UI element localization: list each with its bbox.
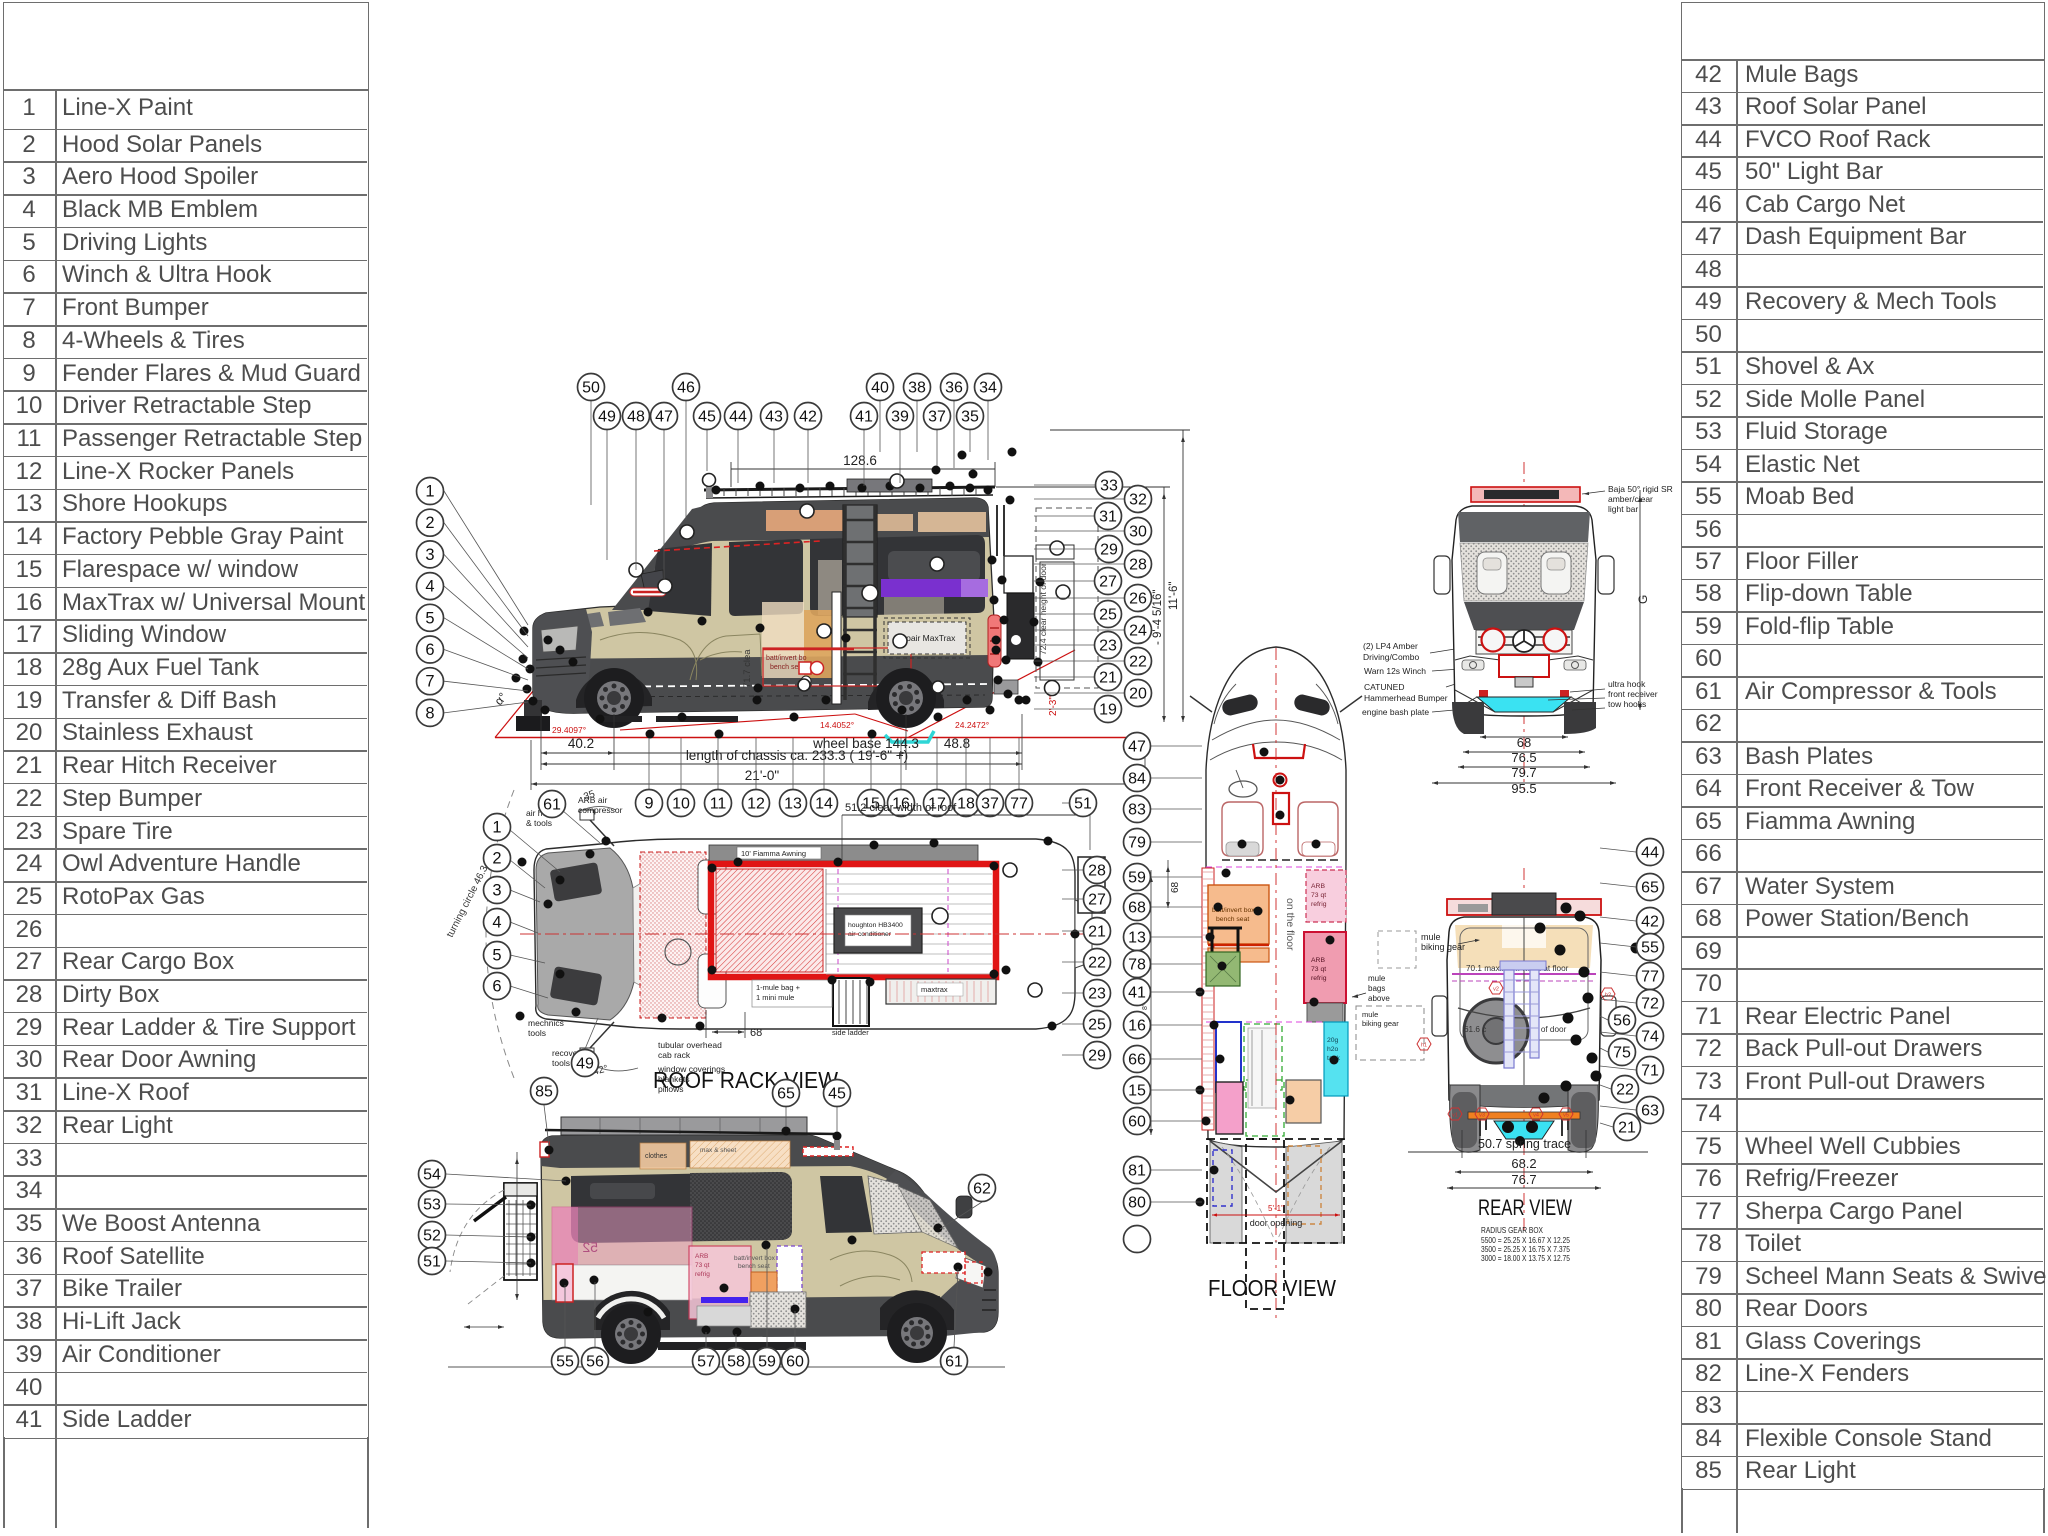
svg-text:v5: v5 [1563, 1113, 1569, 1119]
svg-text:13: 13 [784, 796, 802, 813]
svg-text:76.7: 76.7 [1511, 1172, 1536, 1187]
svg-text:2: 2 [492, 850, 501, 868]
svg-text:22: 22 [1129, 654, 1147, 671]
svg-text:76.5: 76.5 [1511, 750, 1536, 765]
svg-text:16: 16 [1128, 1018, 1146, 1035]
svg-text:51: 51 [423, 1254, 441, 1271]
svg-text:9: 9 [644, 795, 653, 813]
svg-text:light bar: light bar [1608, 504, 1638, 514]
svg-text:52: 52 [582, 1239, 598, 1255]
svg-text:clothes: clothes [645, 1153, 668, 1160]
svg-text:side ladder: side ladder [832, 1028, 869, 1037]
svg-text:34: 34 [979, 380, 997, 397]
svg-text:mule: mule [1368, 974, 1386, 983]
svg-text:air-conditioner: air-conditioner [848, 931, 892, 938]
svg-text:ARB: ARB [1311, 957, 1325, 964]
svg-text:bench sea: bench sea [770, 664, 802, 671]
svg-text:43: 43 [765, 409, 783, 426]
svg-text:10' Fiamma Awning: 10' Fiamma Awning [741, 849, 806, 858]
svg-text:35: 35 [961, 409, 979, 426]
svg-text:44: 44 [729, 409, 747, 426]
svg-text:FLOOR VIEW: FLOOR VIEW [1208, 1275, 1336, 1301]
svg-text:bench seat: bench seat [1216, 916, 1249, 923]
svg-text:55: 55 [1641, 940, 1659, 957]
svg-text:24.2472°: 24.2472° [955, 720, 989, 730]
svg-text:71.7 clea: 71.7 clea [742, 649, 753, 688]
svg-text:50: 50 [582, 380, 600, 397]
svg-text:8: 8 [425, 704, 434, 722]
svg-text:59: 59 [758, 1354, 776, 1371]
svg-text:18: 18 [957, 796, 975, 813]
svg-text:2'-3": 2'-3" [1048, 696, 1059, 716]
svg-text:bench seat: bench seat [738, 1263, 770, 1270]
svg-text:batt/invert box: batt/invert box [734, 1255, 776, 1262]
svg-text:v1: v1 [1452, 1113, 1458, 1119]
svg-text:refrig: refrig [1311, 975, 1327, 982]
svg-text:55: 55 [556, 1354, 574, 1371]
svg-text:21: 21 [1088, 924, 1106, 941]
svg-text:5: 5 [492, 947, 501, 965]
svg-text:60: 60 [786, 1354, 804, 1371]
svg-text:73 qt: 73 qt [695, 1262, 710, 1269]
svg-text:4: 4 [425, 578, 434, 596]
svg-text:42: 42 [799, 409, 817, 426]
svg-text:14.4052°: 14.4052° [820, 720, 854, 730]
svg-text:24: 24 [1129, 623, 1147, 640]
svg-text:65: 65 [1641, 880, 1659, 897]
svg-text:37: 37 [928, 409, 946, 426]
svg-text:23: 23 [1099, 638, 1117, 655]
svg-text:79: 79 [1128, 835, 1146, 852]
svg-text:48: 48 [627, 409, 645, 426]
svg-text:37: 37 [981, 796, 999, 813]
svg-text:28: 28 [1088, 863, 1106, 880]
svg-text:21: 21 [1618, 1120, 1636, 1137]
svg-text:door opening: door opening [1250, 1218, 1303, 1228]
svg-text:36: 36 [945, 380, 963, 397]
svg-text:mule: mule [1421, 932, 1441, 942]
svg-text:83: 83 [1128, 802, 1146, 819]
svg-text:15: 15 [1128, 1083, 1146, 1100]
svg-text:13: 13 [1128, 930, 1146, 947]
svg-text:25: 25 [1088, 1017, 1106, 1034]
svg-text:26: 26 [1129, 591, 1147, 608]
svg-text:(2) LP4 Amber: (2) LP4 Amber [1363, 641, 1418, 651]
svg-text:25: 25 [1099, 607, 1117, 624]
svg-text:65: 65 [777, 1086, 795, 1103]
svg-text:73 qt: 73 qt [1311, 966, 1326, 973]
svg-text:biking gear: biking gear [1421, 942, 1465, 952]
svg-text:biking gear: biking gear [1362, 1019, 1399, 1028]
svg-text:50.7 spring trace: 50.7 spring trace [1478, 1137, 1571, 1151]
svg-text:95.5: 95.5 [1511, 781, 1536, 796]
svg-text:12: 12 [747, 796, 765, 813]
svg-text:20g: 20g [1327, 1037, 1339, 1044]
svg-text:Warn 12s Winch: Warn 12s Winch [1364, 666, 1426, 676]
svg-text:68: 68 [1170, 881, 1181, 893]
svg-text:20: 20 [1129, 686, 1147, 703]
svg-text:tubular overhead: tubular overhead [658, 1040, 722, 1050]
svg-text:14: 14 [815, 796, 833, 813]
svg-text:3: 3 [492, 882, 501, 900]
svg-text:3000 = 18.00 X 13.75 X 12.75: 3000 = 18.00 X 13.75 X 12.75 [1481, 1253, 1570, 1263]
svg-text:63: 63 [1641, 1103, 1659, 1120]
svg-text:mechnics: mechnics [528, 1018, 564, 1028]
svg-text:40: 40 [871, 380, 889, 397]
svg-text:RADIUS GEAR BOX: RADIUS GEAR BOX [1481, 1225, 1543, 1235]
svg-text:houghton HB3400: houghton HB3400 [848, 922, 903, 929]
svg-text:54: 54 [423, 1167, 441, 1184]
svg-text:32: 32 [1129, 492, 1147, 509]
svg-text:33: 33 [1100, 478, 1118, 495]
svg-text:68: 68 [750, 1027, 762, 1039]
svg-text:81: 81 [1128, 1163, 1146, 1180]
svg-text:58: 58 [727, 1354, 745, 1371]
svg-text:44: 44 [1641, 845, 1659, 862]
svg-text:62: 62 [973, 1181, 991, 1198]
svg-text:21: 21 [1099, 670, 1117, 687]
svg-text:above: above [1368, 994, 1390, 1003]
svg-text:27: 27 [1099, 574, 1117, 591]
svg-text:2: 2 [425, 514, 434, 532]
svg-text:61.6 c: 61.6 c [1464, 1025, 1486, 1034]
svg-text:29.4097°: 29.4097° [552, 725, 586, 735]
svg-text:ARB: ARB [1311, 883, 1325, 890]
svg-text:refrig: refrig [1311, 901, 1327, 908]
svg-text:1-mule bag +: 1-mule bag + [756, 983, 801, 992]
svg-text:77: 77 [1010, 796, 1028, 813]
svg-text:61: 61 [543, 797, 561, 814]
svg-text:h2: h2 [1605, 993, 1611, 999]
svg-text:68: 68 [1128, 900, 1146, 917]
svg-text:80: 80 [1128, 1195, 1146, 1212]
svg-text:Baja 50° rigid SR: Baja 50° rigid SR [1608, 484, 1673, 494]
svg-text:52: 52 [423, 1228, 441, 1245]
svg-text:45: 45 [828, 1086, 846, 1103]
svg-text:1 mini mule: 1 mini mule [756, 993, 794, 1002]
svg-text:6: 6 [425, 641, 434, 659]
svg-text:refrig: refrig [695, 1271, 710, 1278]
svg-text:Hammerhead Bumper: Hammerhead Bumper [1364, 693, 1448, 703]
svg-text:CATUNED: CATUNED [1364, 682, 1404, 692]
svg-text:42: 42 [1641, 914, 1659, 931]
svg-text:tools: tools [552, 1058, 570, 1068]
svg-text:7: 7 [425, 673, 434, 691]
svg-text:4: 4 [492, 914, 501, 932]
svg-text:57: 57 [697, 1354, 715, 1371]
svg-text:29: 29 [1088, 1048, 1106, 1065]
svg-text:28: 28 [1129, 557, 1147, 574]
svg-text:bags: bags [1368, 984, 1385, 993]
svg-text:3: 3 [425, 546, 434, 564]
svg-text:128.6: 128.6 [843, 453, 877, 468]
svg-text:46: 46 [677, 380, 695, 397]
svg-text:5'-1": 5'-1" [1268, 1204, 1284, 1213]
svg-text:27: 27 [1088, 892, 1106, 909]
svg-text:73 qt: 73 qt [1311, 892, 1326, 899]
svg-text:59: 59 [1128, 870, 1146, 887]
svg-text:77: 77 [1641, 969, 1659, 986]
svg-text:53: 53 [423, 1197, 441, 1214]
svg-text:ROOF RACK VIEW: ROOF RACK VIEW [653, 1067, 838, 1093]
svg-text:engine bash plate: engine bash plate [1362, 707, 1429, 717]
svg-text:45: 45 [698, 409, 716, 426]
svg-text:47: 47 [655, 409, 673, 426]
svg-text:maxtrax: maxtrax [921, 985, 948, 994]
svg-text:22: 22 [1088, 955, 1106, 972]
svg-text:REAR VIEW: REAR VIEW [1478, 1195, 1572, 1220]
svg-text:19: 19 [1099, 702, 1117, 719]
svg-text:- 9'-4 5/16": - 9'-4 5/16" [1152, 589, 1164, 645]
svg-text:75: 75 [1613, 1045, 1631, 1062]
svg-text:30: 30 [1129, 524, 1147, 541]
svg-text:78: 78 [1128, 957, 1146, 974]
svg-text:compressor: compressor [578, 805, 623, 815]
svg-text:23: 23 [1088, 986, 1106, 1003]
svg-text:on the floor: on the floor [1284, 898, 1296, 951]
svg-text:56: 56 [1613, 1013, 1631, 1030]
svg-text:72: 72 [1641, 996, 1659, 1013]
svg-text:mule: mule [1362, 1010, 1378, 1019]
svg-text:ultra hook: ultra hook [1608, 679, 1646, 689]
svg-text:h2o: h2o [1327, 1046, 1339, 1053]
svg-text:6: 6 [492, 978, 501, 996]
svg-text:49: 49 [598, 409, 616, 426]
svg-text:length of chassis ca. 233.: length of chassis ca. 233.3 ( 19'-6" +) [686, 748, 908, 763]
svg-text:v4: v4 [1533, 1113, 1539, 1119]
svg-text:49: 49 [576, 1056, 594, 1073]
svg-text:1: 1 [492, 819, 501, 837]
svg-text:61: 61 [945, 1354, 963, 1371]
svg-text:39: 39 [891, 409, 909, 426]
svg-text:1: 1 [425, 483, 434, 501]
svg-text:79.7: 79.7 [1511, 765, 1536, 780]
svg-text:74: 74 [1641, 1029, 1659, 1046]
svg-text:68.2: 68.2 [1511, 1156, 1536, 1171]
svg-text:41: 41 [1128, 985, 1146, 1002]
svg-text:11'-6": 11'-6" [1168, 582, 1180, 610]
svg-text:front receiver: front receiver [1608, 689, 1658, 699]
svg-text:47: 47 [1128, 739, 1146, 756]
svg-text:85: 85 [535, 1084, 553, 1101]
svg-text:max & sheet: max & sheet [700, 1147, 736, 1154]
svg-text:60: 60 [1128, 1114, 1146, 1131]
svg-text:ARB air: ARB air [578, 795, 607, 805]
svg-text:40.2: 40.2 [568, 736, 594, 751]
svg-text:Driving/Combo: Driving/Combo [1363, 652, 1419, 662]
svg-text:tow hooks: tow hooks [1608, 699, 1646, 709]
svg-text:batt/invert bo: batt/invert bo [766, 655, 807, 662]
svg-text:10: 10 [672, 796, 690, 813]
svg-text:v3: v3 [1479, 1113, 1485, 1119]
svg-text:51.2 clear width of roof: 51.2 clear width of roof [845, 802, 957, 814]
svg-text:68: 68 [1517, 735, 1531, 750]
svg-text:amber/clear: amber/clear [1608, 494, 1653, 504]
svg-text:56: 56 [586, 1354, 604, 1371]
svg-text:84: 84 [1128, 771, 1146, 788]
svg-text:tools: tools [528, 1028, 546, 1038]
svg-text:ARB: ARB [695, 1253, 708, 1260]
svg-text:11: 11 [710, 796, 727, 813]
svg-text:66: 66 [1128, 1052, 1146, 1069]
svg-text:29: 29 [1100, 542, 1118, 559]
svg-text:cab rack: cab rack [658, 1050, 691, 1060]
svg-text:41: 41 [855, 409, 873, 426]
svg-text:h1: h1 [1421, 1043, 1427, 1049]
svg-text:51: 51 [1074, 796, 1092, 813]
svg-text:G: G [1636, 595, 1650, 604]
svg-text:71: 71 [1641, 1063, 1659, 1080]
svg-text:21'-0": 21'-0" [745, 768, 780, 783]
svg-text:v2: v2 [1493, 987, 1499, 993]
svg-text:22: 22 [1616, 1082, 1634, 1099]
svg-text:31: 31 [1099, 509, 1117, 526]
svg-text:& tools: & tools [526, 818, 552, 828]
svg-text:5: 5 [425, 609, 434, 627]
svg-text:38: 38 [908, 380, 926, 397]
